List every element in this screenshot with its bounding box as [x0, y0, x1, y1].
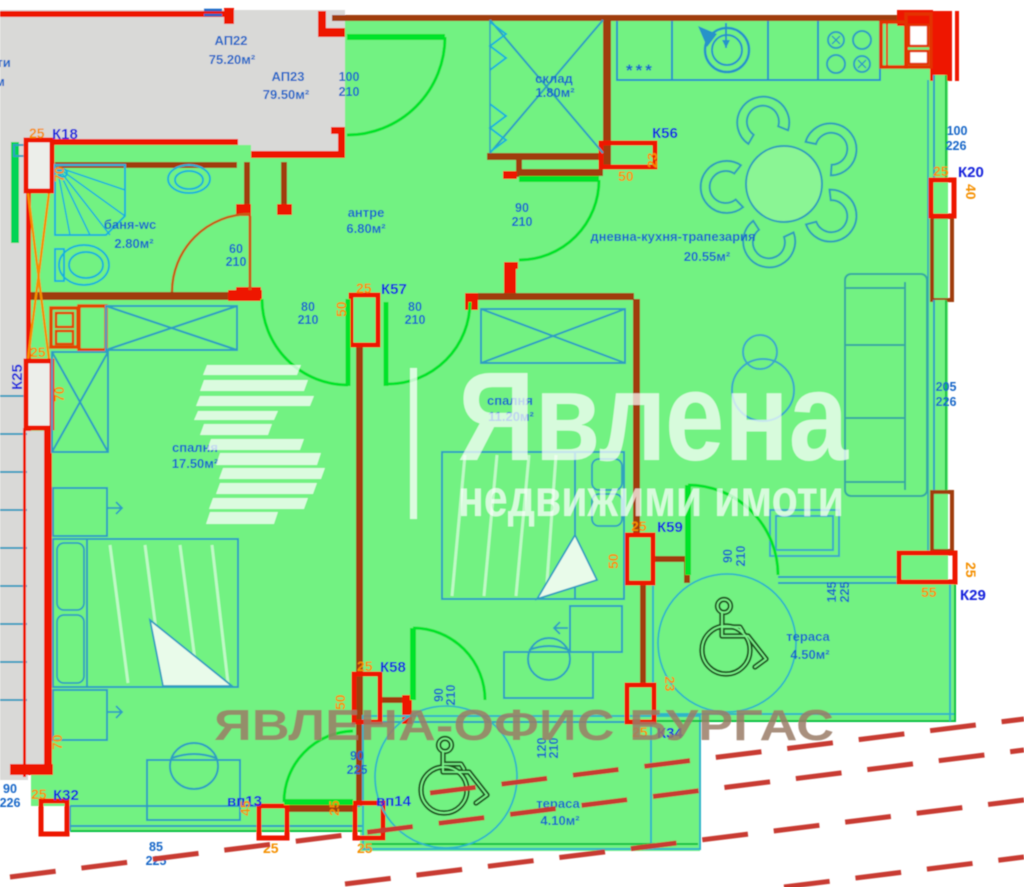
svg-text:2.80м²: 2.80м² — [114, 236, 154, 251]
svg-text:45: 45 — [237, 800, 253, 816]
svg-text:70: 70 — [51, 386, 67, 402]
svg-text:К20: К20 — [958, 164, 984, 181]
svg-text:210: 210 — [339, 85, 360, 99]
svg-text:210: 210 — [298, 313, 319, 327]
svg-text:226: 226 — [946, 139, 967, 153]
svg-text:25: 25 — [326, 800, 342, 816]
svg-text:50: 50 — [333, 301, 349, 317]
svg-text:17.50м²: 17.50м² — [172, 456, 219, 471]
svg-text:60: 60 — [229, 242, 243, 256]
svg-text:90: 90 — [515, 201, 529, 215]
svg-text:90: 90 — [3, 782, 17, 796]
svg-text:70: 70 — [51, 166, 67, 182]
svg-text:4.10м²: 4.10м² — [540, 813, 580, 828]
svg-text:75.20м²: 75.20м² — [209, 52, 256, 67]
svg-text:210: 210 — [734, 546, 748, 567]
svg-text:20.55м²: 20.55м² — [684, 249, 731, 264]
svg-text:70: 70 — [49, 734, 65, 750]
svg-text:80: 80 — [408, 300, 422, 314]
svg-text:210: 210 — [405, 313, 426, 327]
svg-text:225: 225 — [838, 582, 852, 603]
svg-text:ЯВЛЕНА-ОФИС БУРГАС: ЯВЛЕНА-ОФИС БУРГАС — [214, 701, 834, 750]
svg-text:***: *** — [626, 61, 655, 80]
svg-text:90: 90 — [350, 749, 364, 763]
svg-text:100: 100 — [339, 70, 360, 84]
svg-text:25: 25 — [356, 280, 372, 296]
svg-text:90: 90 — [721, 549, 735, 563]
svg-text:К18: К18 — [52, 126, 78, 143]
svg-text:210: 210 — [226, 255, 247, 269]
svg-text:тераса: тераса — [786, 629, 830, 644]
svg-text:25: 25 — [29, 125, 45, 141]
svg-text:К58: К58 — [380, 659, 406, 676]
svg-text:205: 205 — [936, 380, 957, 394]
svg-text:25: 25 — [263, 840, 279, 856]
svg-text:80: 80 — [301, 300, 315, 314]
svg-text:25: 25 — [933, 163, 949, 179]
svg-text:баня-wc: баня-wc — [104, 217, 156, 232]
svg-text:склад: склад — [535, 71, 573, 86]
svg-text:дневна-кухня-трапезария: дневна-кухня-трапезария — [590, 229, 755, 244]
svg-text:м: м — [0, 74, 5, 89]
svg-text:23: 23 — [644, 152, 660, 168]
svg-text:25: 25 — [31, 786, 47, 802]
svg-text:сти: сти — [0, 55, 11, 70]
svg-text:К57: К57 — [381, 281, 407, 298]
svg-text:226: 226 — [0, 796, 20, 810]
svg-text:25: 25 — [963, 562, 979, 578]
svg-text:4.50м²: 4.50м² — [790, 647, 830, 662]
svg-text:50: 50 — [605, 553, 621, 569]
svg-text:225: 225 — [347, 763, 368, 777]
svg-text:50: 50 — [618, 168, 634, 184]
svg-text:вп14: вп14 — [376, 793, 412, 810]
svg-text:К25: К25 — [9, 364, 26, 390]
svg-text:недвижими имоти: недвижими имоти — [458, 470, 844, 528]
svg-text:К29: К29 — [960, 587, 986, 604]
svg-text:АП22: АП22 — [214, 33, 247, 48]
svg-text:100: 100 — [947, 124, 968, 138]
svg-text:1.80м²: 1.80м² — [535, 85, 575, 100]
svg-text:25: 25 — [357, 840, 373, 856]
svg-text:210: 210 — [512, 215, 533, 229]
svg-text:23: 23 — [662, 676, 678, 692]
svg-text:226: 226 — [936, 395, 957, 409]
svg-text:25: 25 — [30, 344, 46, 360]
svg-text:145: 145 — [825, 582, 839, 603]
svg-text:55: 55 — [921, 584, 937, 600]
svg-text:6.80м²: 6.80м² — [346, 221, 386, 236]
svg-text:К32: К32 — [53, 787, 79, 804]
svg-text:антре: антре — [348, 205, 385, 220]
svg-text:85: 85 — [149, 840, 163, 854]
svg-text:79.50м²: 79.50м² — [263, 87, 310, 102]
svg-text:К56: К56 — [652, 125, 678, 142]
svg-text:Явлена: Явлена — [458, 346, 849, 487]
svg-text:25: 25 — [357, 658, 373, 674]
svg-text:40: 40 — [963, 184, 979, 200]
svg-text:АП23: АП23 — [271, 69, 304, 84]
